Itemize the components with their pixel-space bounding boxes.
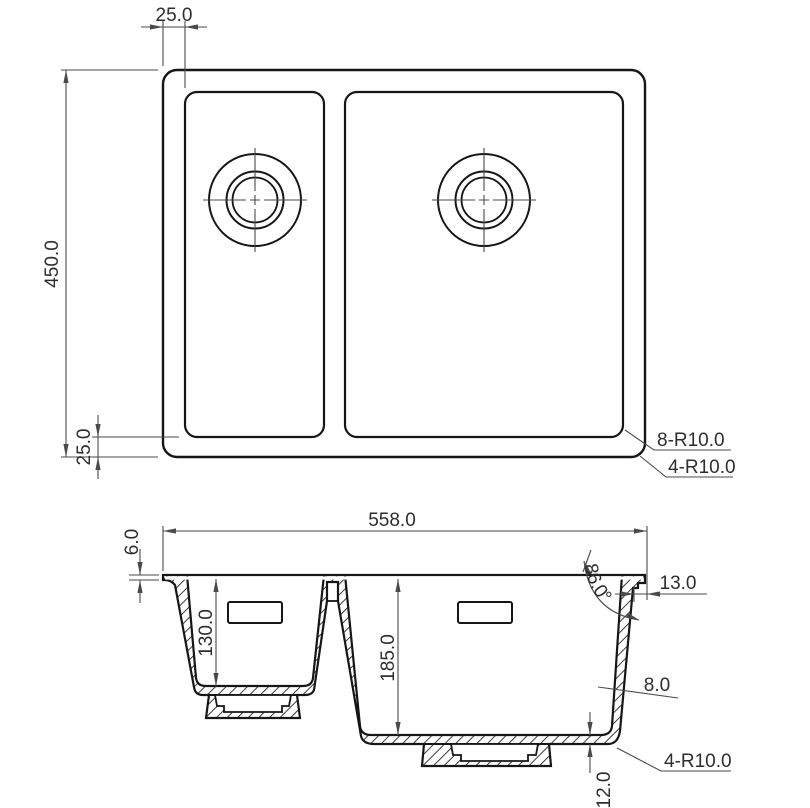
dim-large-bowl-depth-label: 185.0 (378, 634, 399, 682)
dim-overall-height-label: 450.0 (42, 240, 63, 288)
dim-overall-width-label: 558.0 (368, 510, 416, 531)
section-view: 558.0 6.0 130.0 185.0 13.0 8.0 86.0° 12.… (122, 510, 732, 808)
dim-small-bowl-depth-label: 130.0 (196, 609, 217, 657)
note-bowl-corner-radius-label: 8-R10.0 (657, 430, 725, 451)
small-bowl-overflow (228, 602, 282, 623)
small-bowl-drain-recess (215, 695, 291, 712)
large-bowl-overflow (458, 602, 512, 623)
top-view: 25.0 450.0 25.0 8-R10.0 4-R10.0 (42, 5, 736, 479)
rim-band (165, 576, 643, 579)
small-bowl-drain (203, 148, 307, 252)
dim-wall-angle-label: 86.0° (580, 562, 616, 608)
dim-base-thickness-label: 12.0 (594, 772, 615, 808)
dim-wall-thickness-label: 8.0 (644, 675, 670, 696)
dim-rim-offset-top-label: 25.0 (156, 5, 193, 26)
top-view-dimension-arrows (63, 24, 198, 470)
large-bowl-drain (432, 148, 536, 252)
drawing-canvas: 25.0 450.0 25.0 8-R10.0 4-R10.0 (0, 0, 810, 808)
small-bowl-outline (185, 92, 324, 437)
note-outer-corner-radius-label: 4-R10.0 (668, 457, 736, 478)
sink-outline (163, 70, 645, 457)
dim-rim-offset-bottom-label: 25.0 (74, 429, 95, 466)
dim-rim-overhang-label: 13.0 (660, 573, 697, 594)
large-bowl-outline (345, 92, 623, 437)
note-bottom-corner-radius-label: 4-R10.0 (664, 751, 732, 772)
sink-technical-drawing: 25.0 450.0 25.0 8-R10.0 4-R10.0 (0, 0, 810, 808)
large-bowl-drain-recess (451, 744, 538, 761)
dim-rim-thickness-label: 6.0 (122, 529, 143, 555)
